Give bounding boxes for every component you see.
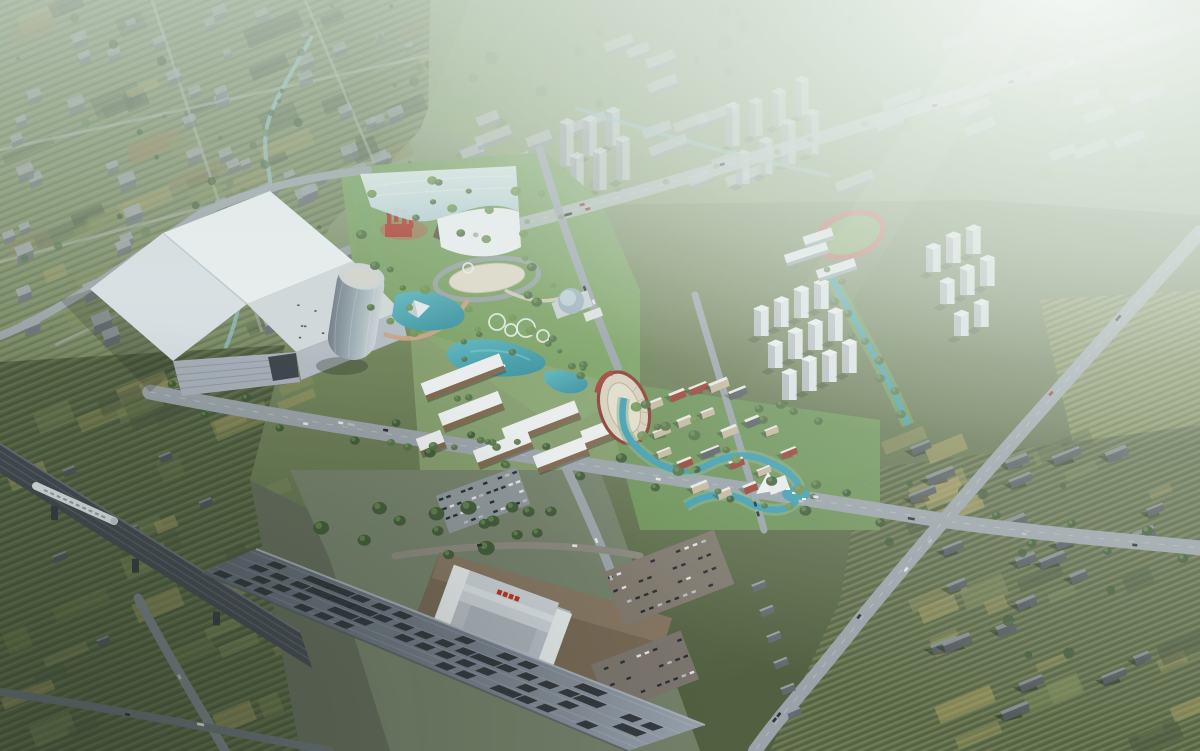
atmosphere (0, 0, 1200, 751)
masterplan-rendering (0, 0, 1200, 751)
green-cast (0, 0, 1200, 751)
aerial-rendering-stage (0, 0, 1200, 751)
